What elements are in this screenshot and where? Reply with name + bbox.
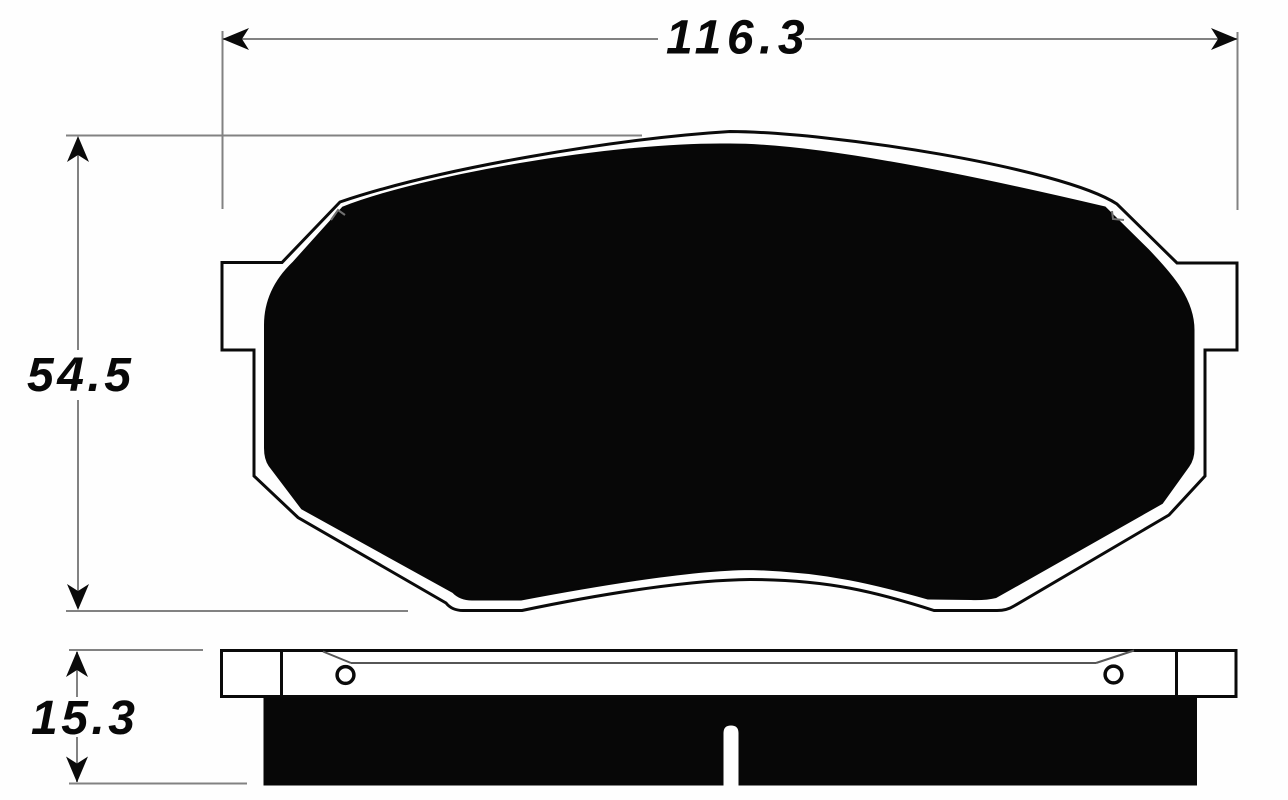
- svg-text:116.3: 116.3: [666, 12, 810, 65]
- svg-text:15.3: 15.3: [31, 692, 138, 745]
- svg-text:54.5: 54.5: [27, 349, 134, 402]
